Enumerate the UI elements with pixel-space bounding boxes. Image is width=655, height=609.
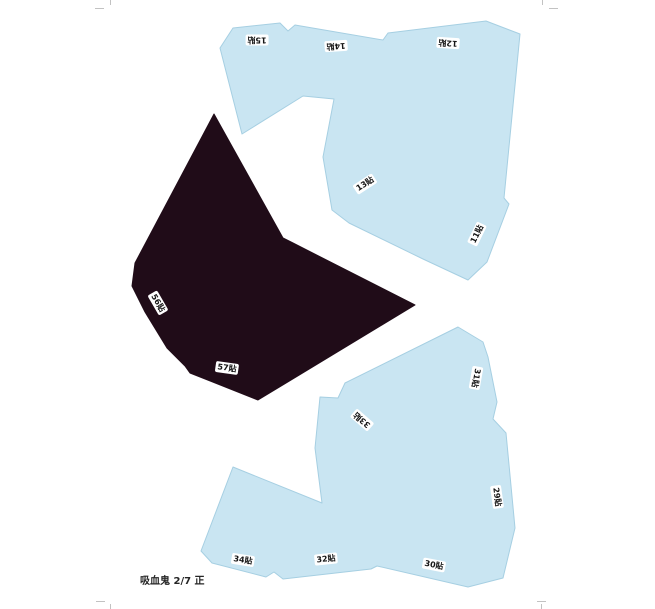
crop-mark-top-left xyxy=(95,0,111,9)
sheet-caption: 吸血鬼 2/7 正 xyxy=(140,572,205,587)
crop-mark-top-right xyxy=(543,0,559,9)
crop-mark-bottom-right xyxy=(537,602,546,609)
crop-mark-bottom-left xyxy=(96,602,111,609)
pattern-sheet: 15貼14貼12貼13貼11貼56貼57貼31貼33貼29貼34貼32貼30貼 … xyxy=(0,0,655,609)
pattern-canvas xyxy=(0,0,655,609)
